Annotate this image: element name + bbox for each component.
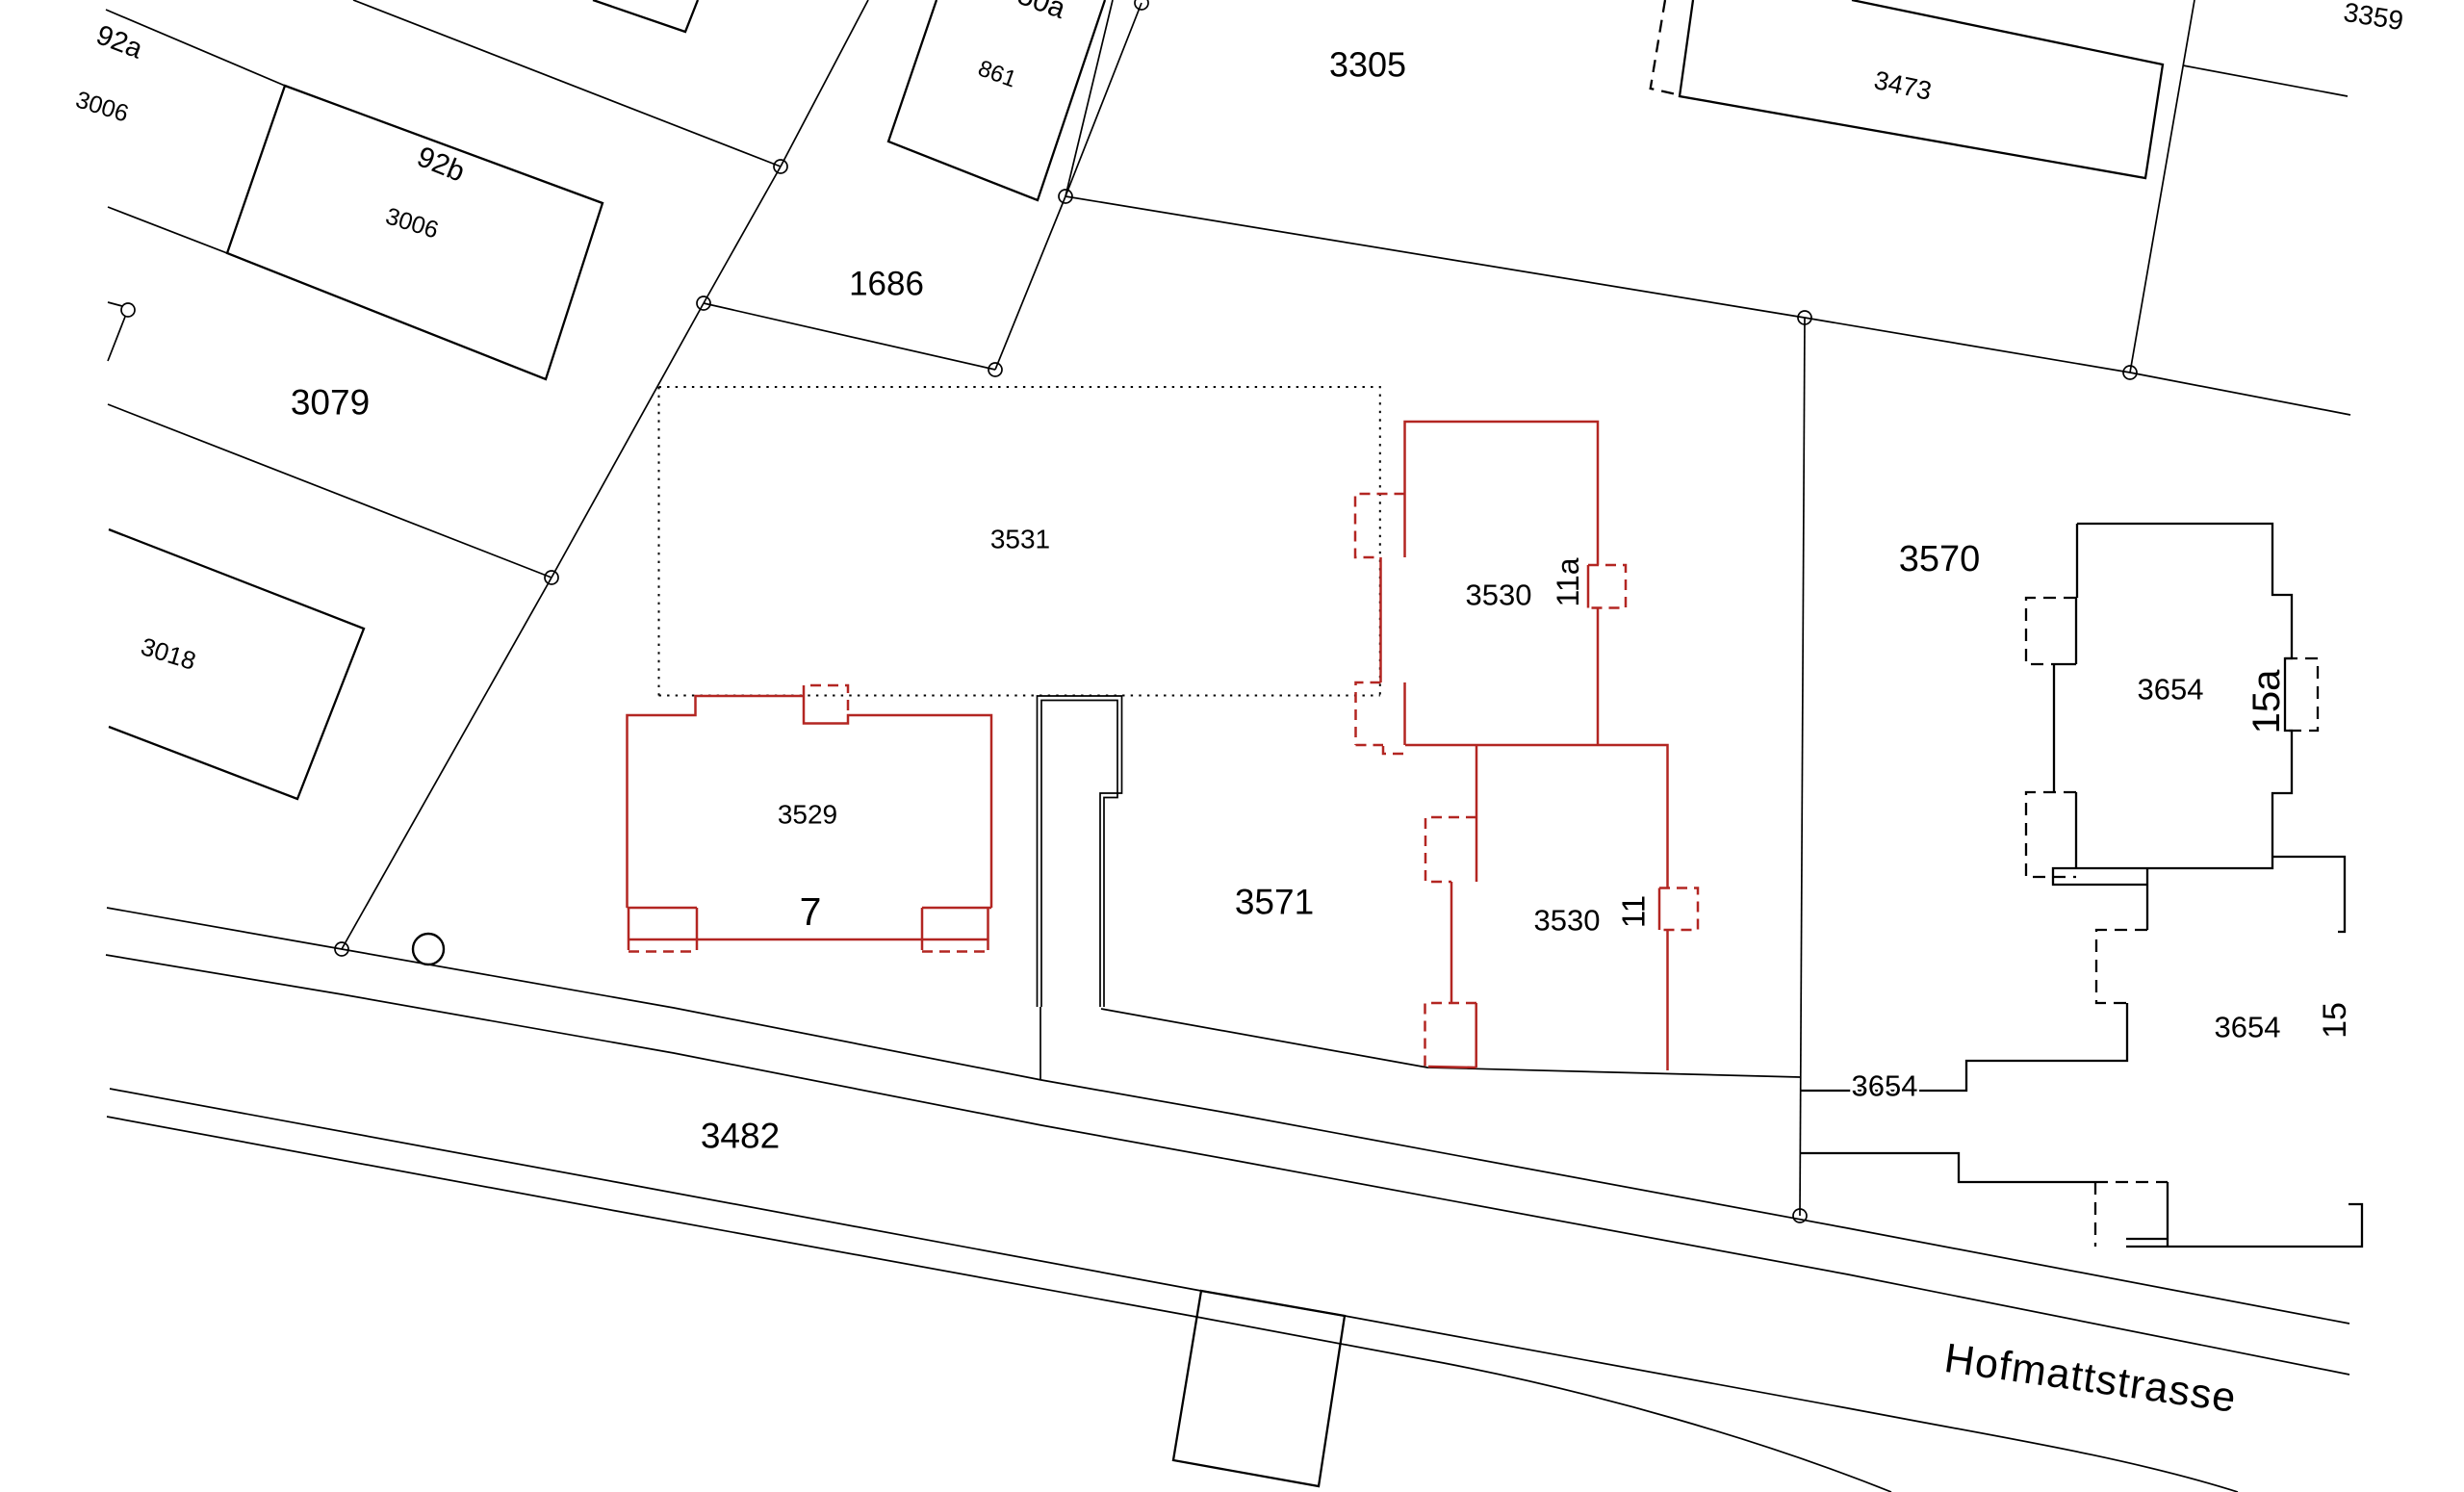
svg-text:11: 11 <box>1616 895 1652 928</box>
svg-text:15: 15 <box>2317 1002 2353 1039</box>
svg-text:3305: 3305 <box>1329 45 1406 85</box>
svg-text:11a: 11a <box>1551 557 1585 606</box>
svg-text:3654: 3654 <box>2138 673 2204 707</box>
svg-text:3530: 3530 <box>1534 904 1601 938</box>
svg-text:3529: 3529 <box>778 800 837 830</box>
svg-text:3530: 3530 <box>1466 579 1532 612</box>
svg-text:3654: 3654 <box>2215 1011 2281 1044</box>
svg-text:15a: 15a <box>2246 669 2288 733</box>
svg-text:3570: 3570 <box>1899 539 1981 579</box>
svg-text:3482: 3482 <box>701 1117 780 1156</box>
svg-text:3079: 3079 <box>291 383 370 423</box>
svg-text:3531: 3531 <box>990 525 1050 554</box>
svg-text:3571: 3571 <box>1235 883 1314 922</box>
svg-text:3654: 3654 <box>1852 1069 1918 1103</box>
svg-text:1686: 1686 <box>849 266 924 303</box>
svg-text:7: 7 <box>800 889 822 934</box>
